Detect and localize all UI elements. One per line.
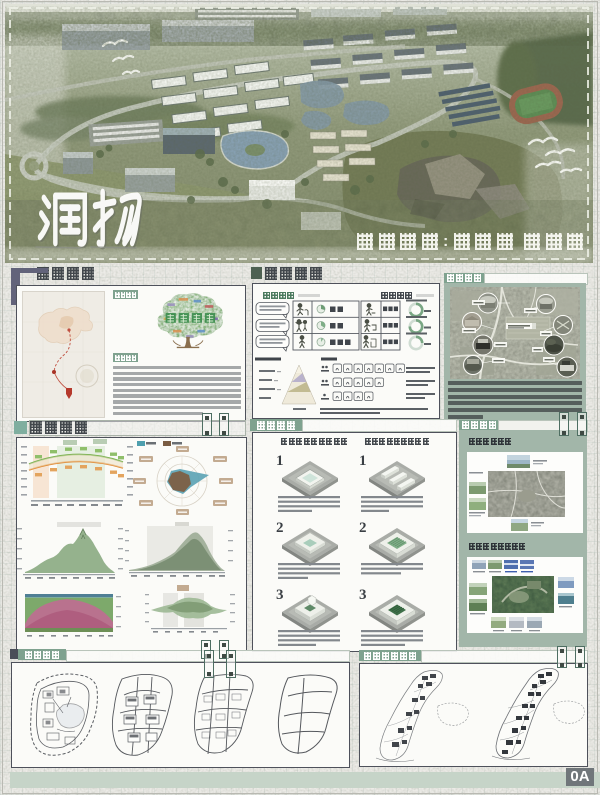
svg-text:1: 1 — [276, 453, 284, 469]
svg-text:2: 2 — [276, 520, 284, 536]
svg-text:2: 2 — [359, 520, 367, 536]
svg-text:1: 1 — [359, 453, 367, 469]
svg-text:3: 3 — [359, 587, 367, 603]
svg-text:3: 3 — [276, 587, 284, 603]
